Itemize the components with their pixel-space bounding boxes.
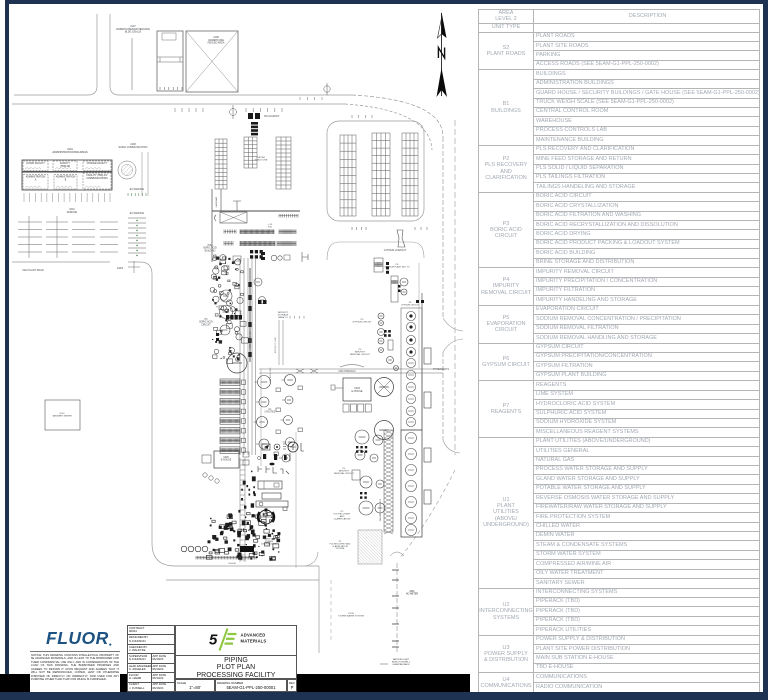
svg-text:BORIC ACID: BORIC ACID — [203, 247, 217, 250]
svg-text:IMPURITY LINE: IMPURITY LINE — [275, 337, 277, 353]
svg-text:BUILDING: BUILDING — [205, 250, 216, 252]
svg-text:MATERIALS: MATERIALS — [241, 639, 267, 644]
svg-text:BLDG 150x110: BLDG 150x110 — [125, 31, 142, 34]
svg-text:COMMUNICATIONS: COMMUNICATIONS — [86, 177, 108, 180]
svg-text:G1-6240: G1-6240 — [228, 563, 237, 565]
svg-text:B: B — [65, 179, 67, 181]
svg-text:0201 PLANT ROAD: 0201 PLANT ROAD — [22, 269, 43, 272]
svg-text:STACK LINE: STACK LINE — [255, 159, 268, 162]
svg-text:GYPSUM LOADOUT: GYPSUM LOADOUT — [384, 249, 407, 252]
svg-text:BA LOADOUT: BA LOADOUT — [264, 115, 280, 118]
svg-text:LUNCH FACILITY: LUNCH FACILITY — [26, 162, 45, 165]
svg-text:GATE: GATE — [117, 267, 124, 270]
svg-text:REMOVAL CIRCUIT: REMOVAL CIRCUIT — [350, 353, 371, 356]
svg-text:NO METER: NO METER — [406, 594, 418, 596]
svg-text:P1U: P1U — [268, 227, 273, 229]
svg-text:5: 5 — [209, 632, 218, 649]
svg-text:FACILITY (TBD) A/V: FACILITY (TBD) A/V — [87, 174, 108, 177]
svg-text:E-HOUSE: E-HOUSE — [352, 390, 363, 393]
svg-text:ADVANCED: ADVANCED — [241, 633, 266, 638]
svg-text:P7 REAGENTS: P7 REAGENTS — [433, 368, 450, 371]
svg-text:GYPSUM CIRCUIT: GYPSUM CIRCUIT — [401, 304, 420, 306]
svg-text:ADMINISTRATION: ADMINISTRATION — [56, 176, 76, 179]
svg-text:FENCED AREA: FENCED AREA — [208, 42, 225, 45]
svg-text:UTILITIES: UTILITIES — [265, 412, 276, 414]
svg-text:GYPSUM CIRCUIT: GYPSUM CIRCUIT — [353, 322, 373, 324]
svg-text:EV PARKING: EV PARKING — [130, 212, 145, 215]
svg-text:ADMINISTRATION: ADMINISTRATION — [26, 176, 46, 179]
svg-text:FACILITY: FACILITY — [60, 162, 70, 165]
svg-text:HAULWAY: HAULWAY — [215, 196, 218, 207]
svg-text:SANITARY SEWER: SANITARY SEWER — [52, 415, 72, 418]
svg-text:CHANGE FACILITY: CHANGE FACILITY — [87, 162, 108, 165]
svg-text:STORAGE: STORAGE — [278, 314, 289, 317]
svg-text:REMOVAL CIRCUIT: REMOVAL CIRCUIT — [334, 472, 355, 475]
svg-text:EV PARKING: EV PARKING — [130, 188, 145, 191]
svg-text:STORM WATER SYSTEM: STORM WATER SYSTEM — [338, 615, 364, 618]
svg-text:RADIO COMMUNICATION: RADIO COMMUNICATION — [119, 146, 148, 149]
svg-text:A: A — [35, 178, 37, 181]
svg-text:BORIC ACID: BORIC ACID — [199, 321, 213, 324]
svg-text:(TBD) AB: (TBD) AB — [60, 165, 70, 168]
svg-text:E-HOUSE: E-HOUSE — [221, 460, 232, 462]
svg-text:CIRCUIT: CIRCUIT — [201, 324, 211, 326]
svg-text:AREA TO: AREA TO — [278, 316, 288, 319]
svg-text:SUBSPER RACK: SUBSPER RACK — [392, 663, 410, 666]
svg-text:SANITATION PIPERACK: SANITATION PIPERACK — [379, 498, 382, 521]
svg-text:CLARIFICATION: CLARIFICATION — [334, 518, 351, 521]
svg-text:ADMINISTRATION BUILDINGS: ADMINISTRATION BUILDINGS — [52, 151, 88, 154]
svg-text:DISTRIBUTION: DISTRIBUTION — [261, 544, 277, 546]
svg-text:FUTURE: FUTURE — [336, 548, 345, 550]
svg-text:PLANT SITE: PLANT SITE — [263, 538, 276, 541]
svg-text:U302 PIPERACK: U302 PIPERACK — [249, 331, 252, 349]
svg-text:U3D PIPERACK: U3D PIPERACK — [338, 370, 356, 373]
svg-text:PARKING: PARKING — [67, 211, 78, 214]
